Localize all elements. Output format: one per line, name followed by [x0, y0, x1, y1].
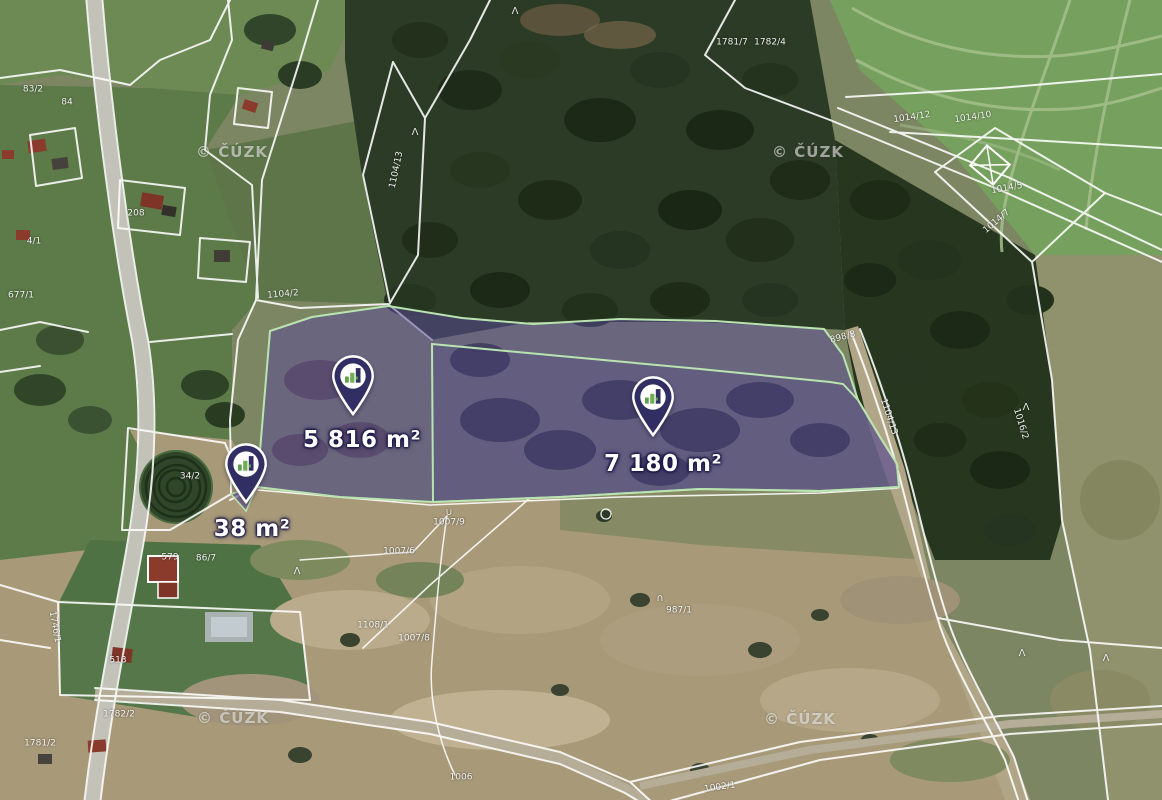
cuzk-watermark: © ČÚZK	[764, 710, 836, 728]
cuzk-watermark: © ČÚZK	[196, 143, 268, 161]
cuzk-watermark: © ČÚZK	[197, 709, 269, 727]
cuzk-watermark: © ČÚZK	[772, 143, 844, 161]
watermark-layer: © ČÚZK© ČÚZK© ČÚZK© ČÚZK	[0, 0, 1162, 800]
map-canvas[interactable]: 5 816 m² 7 180 m²	[0, 0, 1162, 800]
